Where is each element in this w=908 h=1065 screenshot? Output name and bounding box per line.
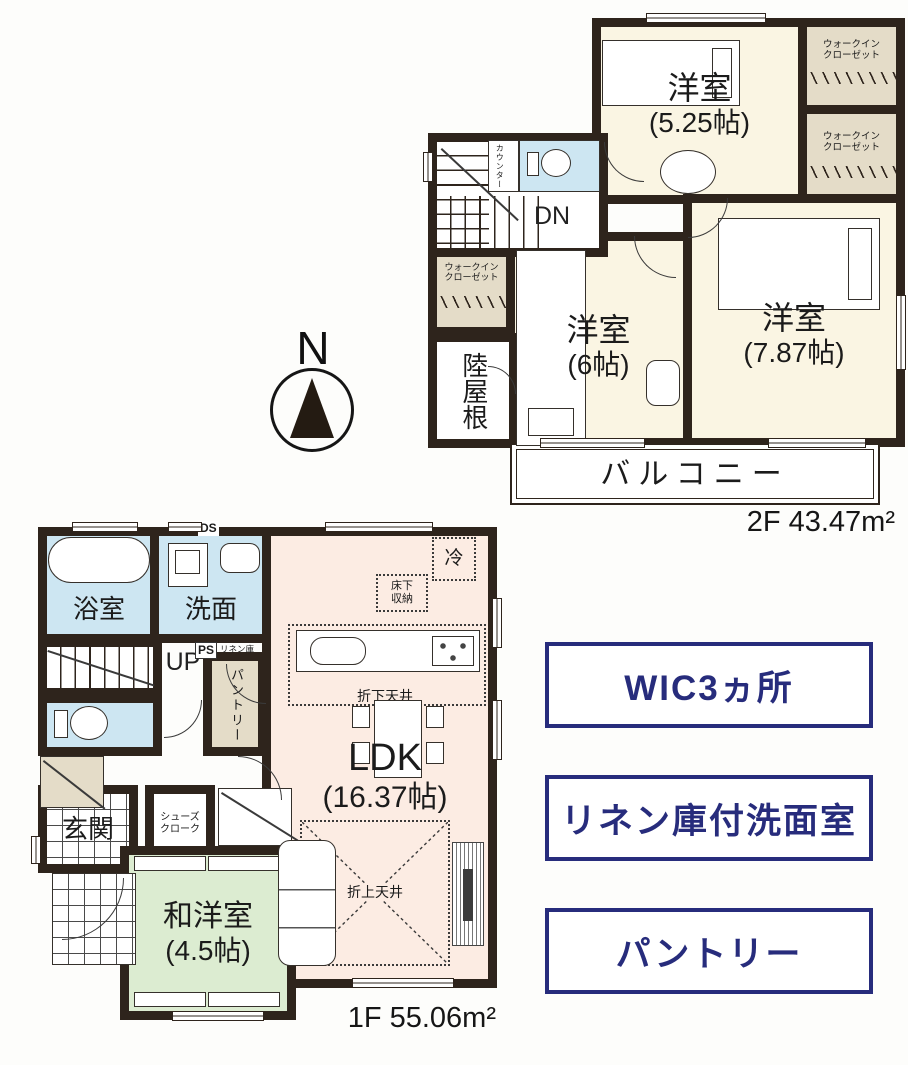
bedroom-7-87-size: (7.87帖) bbox=[683, 337, 905, 369]
window-2f-top bbox=[646, 13, 766, 23]
window-2f-bedroom787-balcony bbox=[768, 438, 866, 448]
area-1f-label: 1F 55.06m² bbox=[260, 1002, 496, 1035]
toilet-2f-bowl bbox=[541, 149, 571, 177]
window-bath-top bbox=[72, 522, 138, 532]
bedroom-5-25-size: (5.25帖) bbox=[592, 107, 807, 139]
wic-top-label: ウォークイン クローゼット bbox=[800, 40, 903, 62]
window-washroom-top bbox=[168, 522, 202, 532]
washing-machine bbox=[168, 543, 208, 587]
toilet-1f-bowl bbox=[70, 706, 108, 740]
feature-linen-washroom-label: リネン庫付洗面室 bbox=[561, 793, 857, 844]
wic-left-label: ウォークイン クローゼット bbox=[431, 262, 512, 283]
ldk-name: LDK bbox=[280, 737, 490, 781]
pipe-space-chip: PS bbox=[195, 642, 217, 659]
washitsu-size: (4.5帖) bbox=[120, 935, 296, 967]
dining-chair-1 bbox=[352, 706, 370, 728]
washitsu-closet-top-right bbox=[208, 856, 280, 871]
window-2f-bedroom6-balcony bbox=[540, 438, 645, 448]
wic-left-rail bbox=[436, 296, 508, 308]
stairs-down-label: DN bbox=[522, 202, 582, 231]
room-2f-wic-top bbox=[798, 18, 905, 114]
shoe-cloak-label: シューズ クローク bbox=[148, 812, 212, 835]
toilet-1f-tank bbox=[54, 710, 68, 738]
feature-pantry-label: パントリー bbox=[616, 926, 803, 977]
bedroom-5-25-label: 洋室 (5.25帖) bbox=[592, 70, 807, 139]
raised-ceiling-label: 折上天井 bbox=[332, 884, 418, 900]
bedroom-6-label: 洋室 (6帖) bbox=[505, 312, 692, 381]
window-2f-right bbox=[896, 295, 906, 370]
area-2f-label: 2F 43.47m² bbox=[585, 506, 895, 539]
bed-7-87-pillow bbox=[848, 228, 872, 300]
window-ldk-right-upper bbox=[492, 598, 502, 648]
window-ldk-bottom bbox=[352, 978, 454, 988]
wic-right-rail bbox=[806, 166, 898, 178]
tv-board bbox=[452, 842, 484, 946]
compass-needle bbox=[290, 378, 334, 438]
entrance-label: 玄関 bbox=[44, 815, 132, 845]
wic-top-rail bbox=[806, 72, 898, 84]
floor-storage-label: 床下 収納 bbox=[376, 580, 428, 605]
feature-box-linen-washroom: リネン庫付洗面室 bbox=[545, 775, 873, 861]
washroom-label: 洗面 bbox=[158, 595, 264, 625]
bedroom-5-25-name: 洋室 bbox=[592, 70, 807, 107]
washitsu-closet-top-left bbox=[134, 856, 206, 871]
bedroom-7-87-name: 洋室 bbox=[683, 300, 905, 337]
sofa bbox=[278, 840, 336, 966]
toilet-2f-tank bbox=[527, 152, 539, 176]
ldk-label: LDK (16.37帖) bbox=[280, 737, 490, 815]
bedroom-6-name: 洋室 bbox=[505, 312, 692, 349]
counter-label: カウンター bbox=[495, 144, 504, 189]
linen-label: リネン庫 bbox=[220, 645, 264, 655]
feature-box-wic: WIC3ヵ所 bbox=[545, 642, 873, 728]
wic-right-label: ウォークイン クローゼット bbox=[800, 132, 903, 154]
bed-6-pillow bbox=[528, 408, 574, 436]
washitsu-closet-bottom-left bbox=[134, 992, 206, 1007]
compass-n-label: N bbox=[288, 322, 338, 375]
balcony-label: バルコニー bbox=[530, 458, 860, 493]
window-ldk-right-lower bbox=[492, 700, 502, 760]
wash-sink bbox=[220, 543, 260, 573]
floor-plan-page: バルコニー DN カウンター ウォークイン クローゼット ウォークイン クローゼ… bbox=[0, 0, 908, 1065]
tv-screen bbox=[463, 869, 473, 921]
door-arc-toilet bbox=[164, 700, 202, 738]
window-washitsu-bottom bbox=[172, 1011, 264, 1021]
kitchen-stove bbox=[432, 636, 474, 666]
feature-wic-label: WIC3ヵ所 bbox=[624, 660, 794, 711]
washing-machine-drum bbox=[175, 550, 200, 574]
ldk-size: (16.37帖) bbox=[280, 781, 490, 816]
flat-roof-label: 陸屋根 bbox=[458, 352, 488, 430]
washitsu-label: 和洋室 (4.5帖) bbox=[120, 900, 296, 967]
washitsu-name: 和洋室 bbox=[120, 900, 296, 935]
window-2f-hall-left bbox=[423, 152, 433, 182]
bath-label: 浴室 bbox=[46, 595, 152, 625]
room-2f-wic-right bbox=[798, 105, 905, 203]
dining-chair-3 bbox=[426, 706, 444, 728]
bedroom-7-87-label: 洋室 (7.87帖) bbox=[683, 300, 905, 369]
bedroom-6-size: (6帖) bbox=[505, 349, 692, 381]
window-entrance-left bbox=[31, 836, 41, 864]
feature-box-pantry: パントリー bbox=[545, 908, 873, 994]
bathtub bbox=[48, 537, 150, 583]
kitchen-sink bbox=[310, 637, 366, 665]
table-5-25 bbox=[660, 150, 716, 194]
fridge-label: 冷 bbox=[432, 548, 476, 570]
window-ldk-top bbox=[325, 522, 433, 532]
